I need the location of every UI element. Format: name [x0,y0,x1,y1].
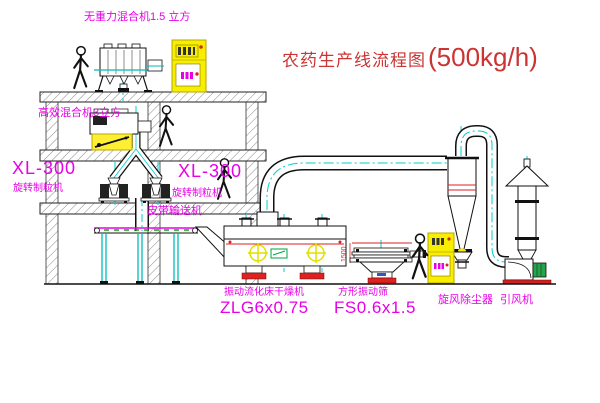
induced-draft-fan [503,259,551,284]
label-dryer-name: 振动流化床干燥机 [224,288,304,298]
label-granulator-right-model: XL-300 [178,162,242,180]
label-granulator-right-type: 旋转制粒机 [172,189,222,199]
person-mid-floor [160,106,173,146]
title-capacity: (500kg/h) [428,42,538,73]
label-fan: 引风机 [500,295,533,306]
label-cyclone: 旋风除尘器 [438,295,493,306]
label-screen-name: 方形振动筛 [338,288,388,298]
granulator-right [141,178,171,203]
gravity-free-mixer [94,44,164,93]
control-cabinet-right [428,233,454,283]
title-text: 农药生产线流程图 [282,46,426,71]
label-gravity-free-mixer: 无重力混合机1.5 立方 [84,12,190,23]
vibrating-screen [350,243,426,283]
flow-diagram-page: 农药生产线流程图 (500kg/h) 无重力混合机1.5 立方 高效混合机3立方… [0,0,600,403]
label-granulator-left-model: XL-300 [12,159,76,177]
exhaust-stack [506,159,548,259]
fan-motor [533,263,546,277]
granulator-left [99,178,129,203]
label-belt-conveyor: 皮带输送机 [147,206,202,217]
page-title: 农药生产线流程图 (500kg/h) [282,42,538,73]
screen-dimension-annotation: 1500 [341,246,348,262]
fluid-bed-dryer [224,212,346,279]
label-screen-model: FS0.6x1.5 [334,299,416,316]
floor-slab-top [40,92,266,102]
exhaust-duct [267,163,447,228]
belt-conveyor [94,227,235,284]
label-dryer-model: ZLG6x0.75 [220,299,309,316]
label-high-efficiency-mixer: 高效混合机3立方 [38,108,121,119]
label-granulator-left-type: 旋转制粒机 [13,184,63,194]
person-top-floor [74,47,88,88]
control-cabinet-top [172,40,206,92]
